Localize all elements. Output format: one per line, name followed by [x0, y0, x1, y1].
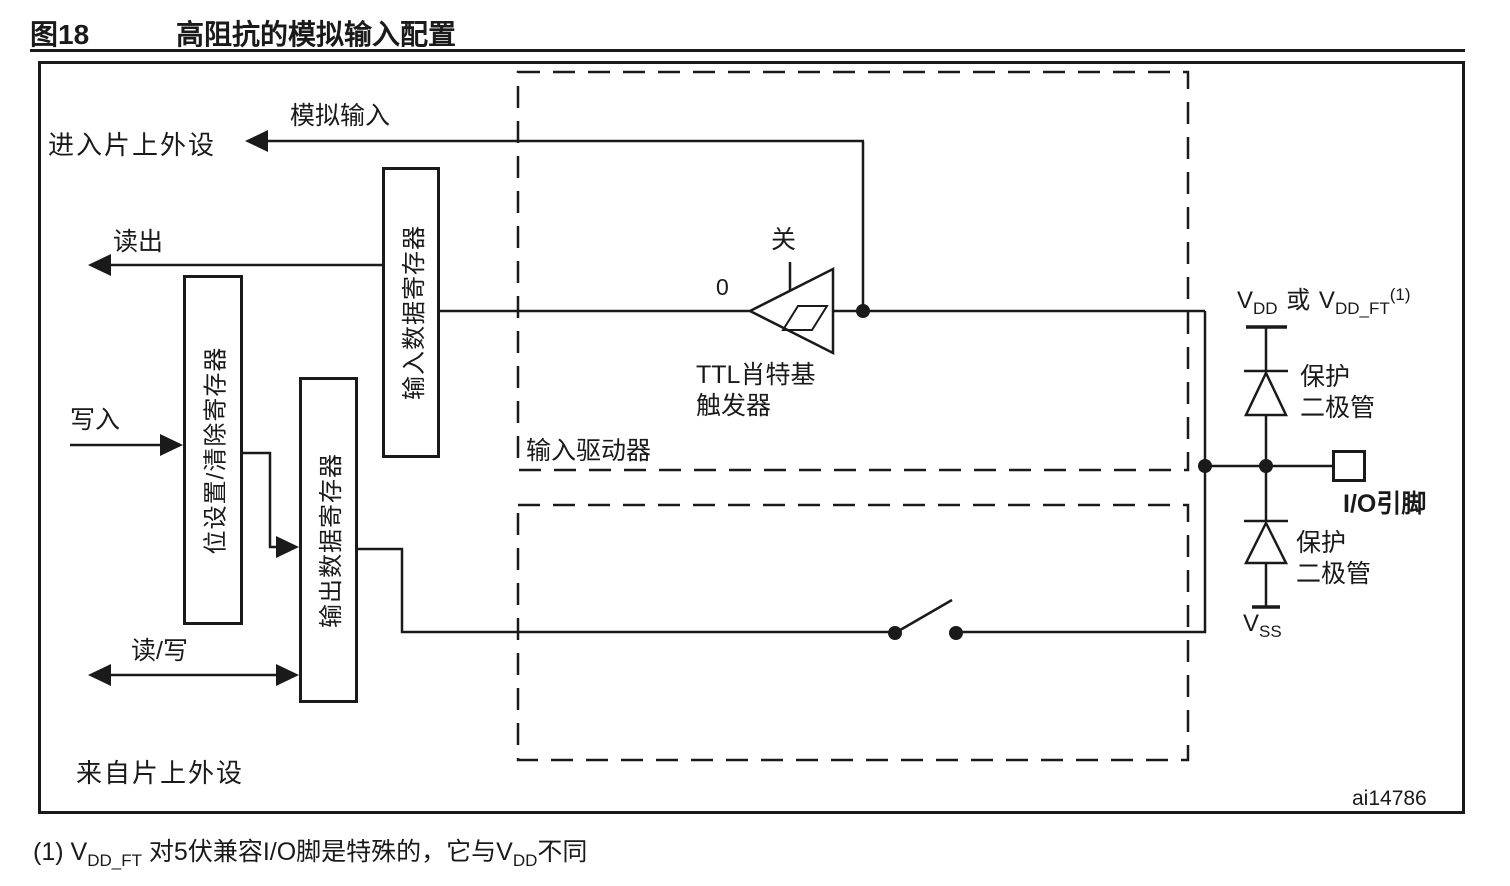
switch-contact-dot-right: [949, 626, 963, 640]
outreg-to-switch-wire: [357, 549, 890, 632]
switch-lever: [895, 600, 952, 633]
diode-junction-dot: [1259, 459, 1273, 473]
input-driver-label: 输入驱动器: [526, 437, 651, 466]
schmitt-trigger-triangle: [750, 269, 833, 353]
analog-input-arrowhead: [245, 130, 268, 152]
bitreg-to-outreg-wire: [242, 453, 279, 547]
read-out-arrowhead: [88, 254, 111, 276]
output-data-register-box: 输出数据寄存器: [299, 377, 358, 703]
bitreg-to-outreg-arrowhead: [276, 536, 299, 558]
io-pin-square: [1332, 450, 1366, 482]
bit-set-clear-register-box: 位设置/清除寄存器: [183, 275, 243, 625]
switch-contact-dot-left: [888, 626, 902, 640]
read-write-left-arrowhead: [88, 664, 111, 686]
read-write-right-arrowhead: [276, 664, 299, 686]
bit-set-clear-register-label: 位设置/清除寄存器: [196, 346, 231, 554]
schmitt-junction-dot: [856, 304, 870, 318]
write-in-arrowhead: [160, 434, 183, 456]
input-driver-dashed-box: [518, 72, 1188, 470]
datasheet-figure-page: { "figure": { "number": "图18", "title": …: [0, 0, 1510, 886]
upper-diode-triangle: [1246, 373, 1286, 415]
input-data-register-box: 输入数据寄存器: [382, 167, 440, 458]
branch-junction-dot: [1198, 459, 1212, 473]
lower-diode-triangle: [1246, 523, 1286, 563]
input-data-register-label: 输入数据寄存器: [394, 225, 429, 400]
output-data-register-label: 输出数据寄存器: [311, 453, 346, 628]
